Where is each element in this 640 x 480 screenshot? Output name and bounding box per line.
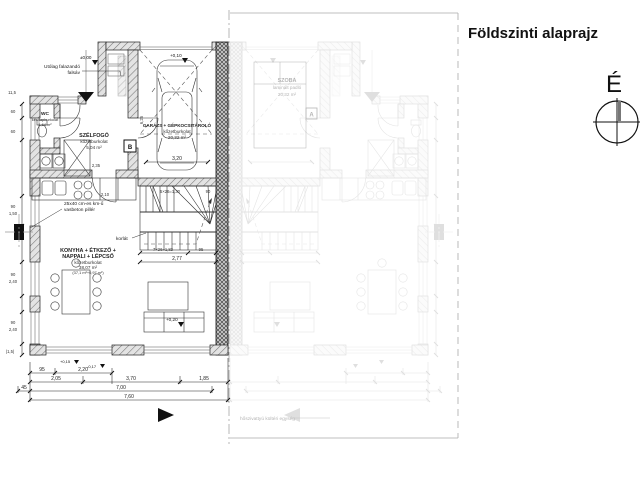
dim-l7: 90 bbox=[11, 320, 16, 325]
mirror-room-area: 20,32 m² bbox=[278, 92, 297, 97]
garage-area: 20,32 m² bbox=[168, 135, 187, 140]
level-terrace-a: +0,15 bbox=[60, 359, 71, 364]
north-label: É bbox=[606, 71, 622, 98]
infill-note-2: falsáv bbox=[67, 70, 80, 76]
szelfogo-area: 5,04 m² bbox=[86, 145, 102, 150]
dim-b1a: 95 bbox=[39, 367, 45, 373]
dim-b3b: 7,00 bbox=[116, 385, 126, 391]
living-name-1: KONYHA + ÉTKEZŐ + bbox=[60, 246, 116, 254]
section-mark-a: A bbox=[309, 113, 314, 119]
garage-name: GARÁZS + GÉPKOCSITÁROLÓ bbox=[143, 121, 212, 128]
dim-garage-d: 6,25 bbox=[139, 115, 144, 124]
level-entry: ±0,00 bbox=[80, 55, 92, 60]
dim-stair-bot: 7×26=1,82 bbox=[153, 247, 174, 252]
dim-l6: 2,40 bbox=[9, 279, 18, 284]
garage-finish: kőzetburkolat bbox=[163, 129, 191, 134]
page-title: Földszinti alaprajz bbox=[468, 25, 598, 42]
mirror-unit: SZOBA laminált padló 20,32 m² A hőszivat… bbox=[228, 10, 458, 444]
mirror-room-finish: laminált padló bbox=[273, 85, 302, 90]
level-garage: +0,10 bbox=[170, 53, 182, 58]
dim-garage-w: 3,20 bbox=[172, 156, 182, 162]
dim-szelfogo: 2,35 bbox=[92, 163, 101, 168]
mirror-room-name: SZOBA bbox=[278, 78, 297, 84]
level-terrace-b: -0,17 bbox=[87, 364, 97, 369]
dim-b1b: 2,20 bbox=[78, 367, 88, 373]
compass-icon: É bbox=[593, 71, 640, 146]
dim-door: 2,10 bbox=[101, 192, 110, 197]
living-area-detail: (37,1 m²+0,97 m²) bbox=[72, 270, 104, 275]
dim-l-bot: (1,5) bbox=[6, 349, 15, 354]
section-mark-b: B bbox=[128, 145, 133, 151]
dim-l-top: 11,5 bbox=[8, 90, 17, 95]
drawing-sheet: SZOBA laminált padló 20,32 m² A hőszivat… bbox=[0, 0, 640, 480]
heatpump-note: hőszivattyú kültéri egység bbox=[240, 416, 295, 422]
level-living: +0,20 bbox=[166, 317, 178, 322]
dim-l1: 60 bbox=[11, 109, 16, 114]
dim-stair-bot-w: 95 bbox=[199, 247, 204, 252]
dim-stair-top: 5×26=1,30 bbox=[160, 189, 181, 194]
floorplan-drawing: SZOBA laminált padló 20,32 m² A hőszivat… bbox=[0, 0, 640, 480]
dim-b3a: 45 bbox=[21, 385, 27, 391]
railing-note: korlát bbox=[116, 236, 128, 242]
dim-l5: 90 bbox=[11, 272, 16, 277]
dim-l8: 2,40 bbox=[9, 327, 18, 332]
living-name-2: NAPPALI + LÉPCSŐ bbox=[62, 252, 114, 260]
szelfogo-finish: kőzetburkolat bbox=[80, 139, 108, 144]
szelfogo-name: SZÉLFOGÓ bbox=[79, 131, 109, 139]
dim-stair-total: 2,77 bbox=[172, 256, 182, 262]
dim-l2: 60 bbox=[11, 129, 16, 134]
dim-l4: 1,50 bbox=[9, 211, 18, 216]
dim-l3: 90 bbox=[11, 204, 16, 209]
infill-note-1: Utólag falazandó bbox=[44, 64, 80, 70]
pillar-note-1: 25x40 cm-es km-ű bbox=[64, 201, 104, 207]
car-icon bbox=[152, 60, 202, 170]
dim-b2c: 1,85 bbox=[199, 376, 209, 382]
pillar-note-2: vasbeton pillér bbox=[64, 207, 95, 213]
dim-stair-top-w: 90 bbox=[206, 189, 211, 194]
railing-leader bbox=[132, 233, 146, 238]
dim-b4: 7,60 bbox=[124, 394, 134, 400]
dim-b2b: 3,70 bbox=[126, 376, 136, 382]
dim-b2a: 2,05 bbox=[51, 376, 61, 382]
wc-area: 1,64 m² bbox=[38, 122, 52, 127]
